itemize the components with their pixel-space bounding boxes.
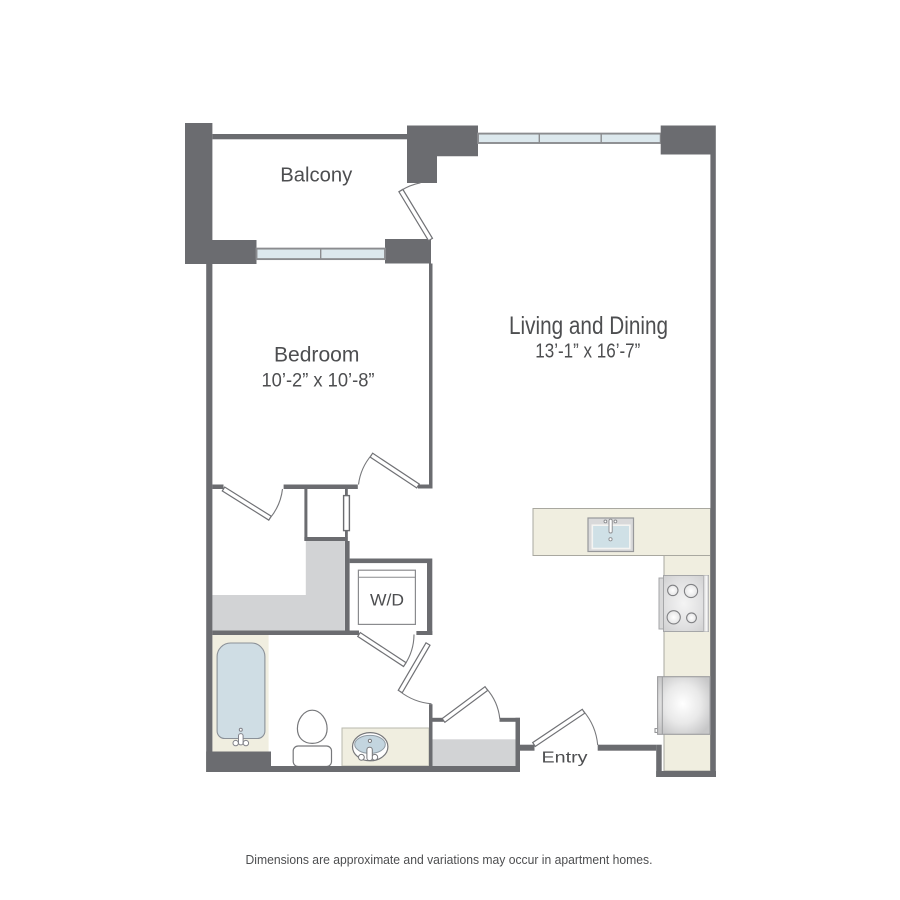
svg-text:Living and Dining: Living and Dining — [509, 312, 668, 340]
svg-text:Balcony: Balcony — [280, 164, 353, 187]
svg-text:Dimensions are approximate and: Dimensions are approximate and variation… — [246, 853, 653, 867]
svg-text:13’-1” x 16’-7”: 13’-1” x 16’-7” — [535, 341, 640, 363]
svg-text:Bedroom: Bedroom — [274, 343, 360, 367]
svg-text:W/D: W/D — [370, 592, 404, 610]
svg-text:Entry: Entry — [542, 749, 588, 766]
svg-text:10’-2” x 10’-8”: 10’-2” x 10’-8” — [262, 370, 375, 392]
